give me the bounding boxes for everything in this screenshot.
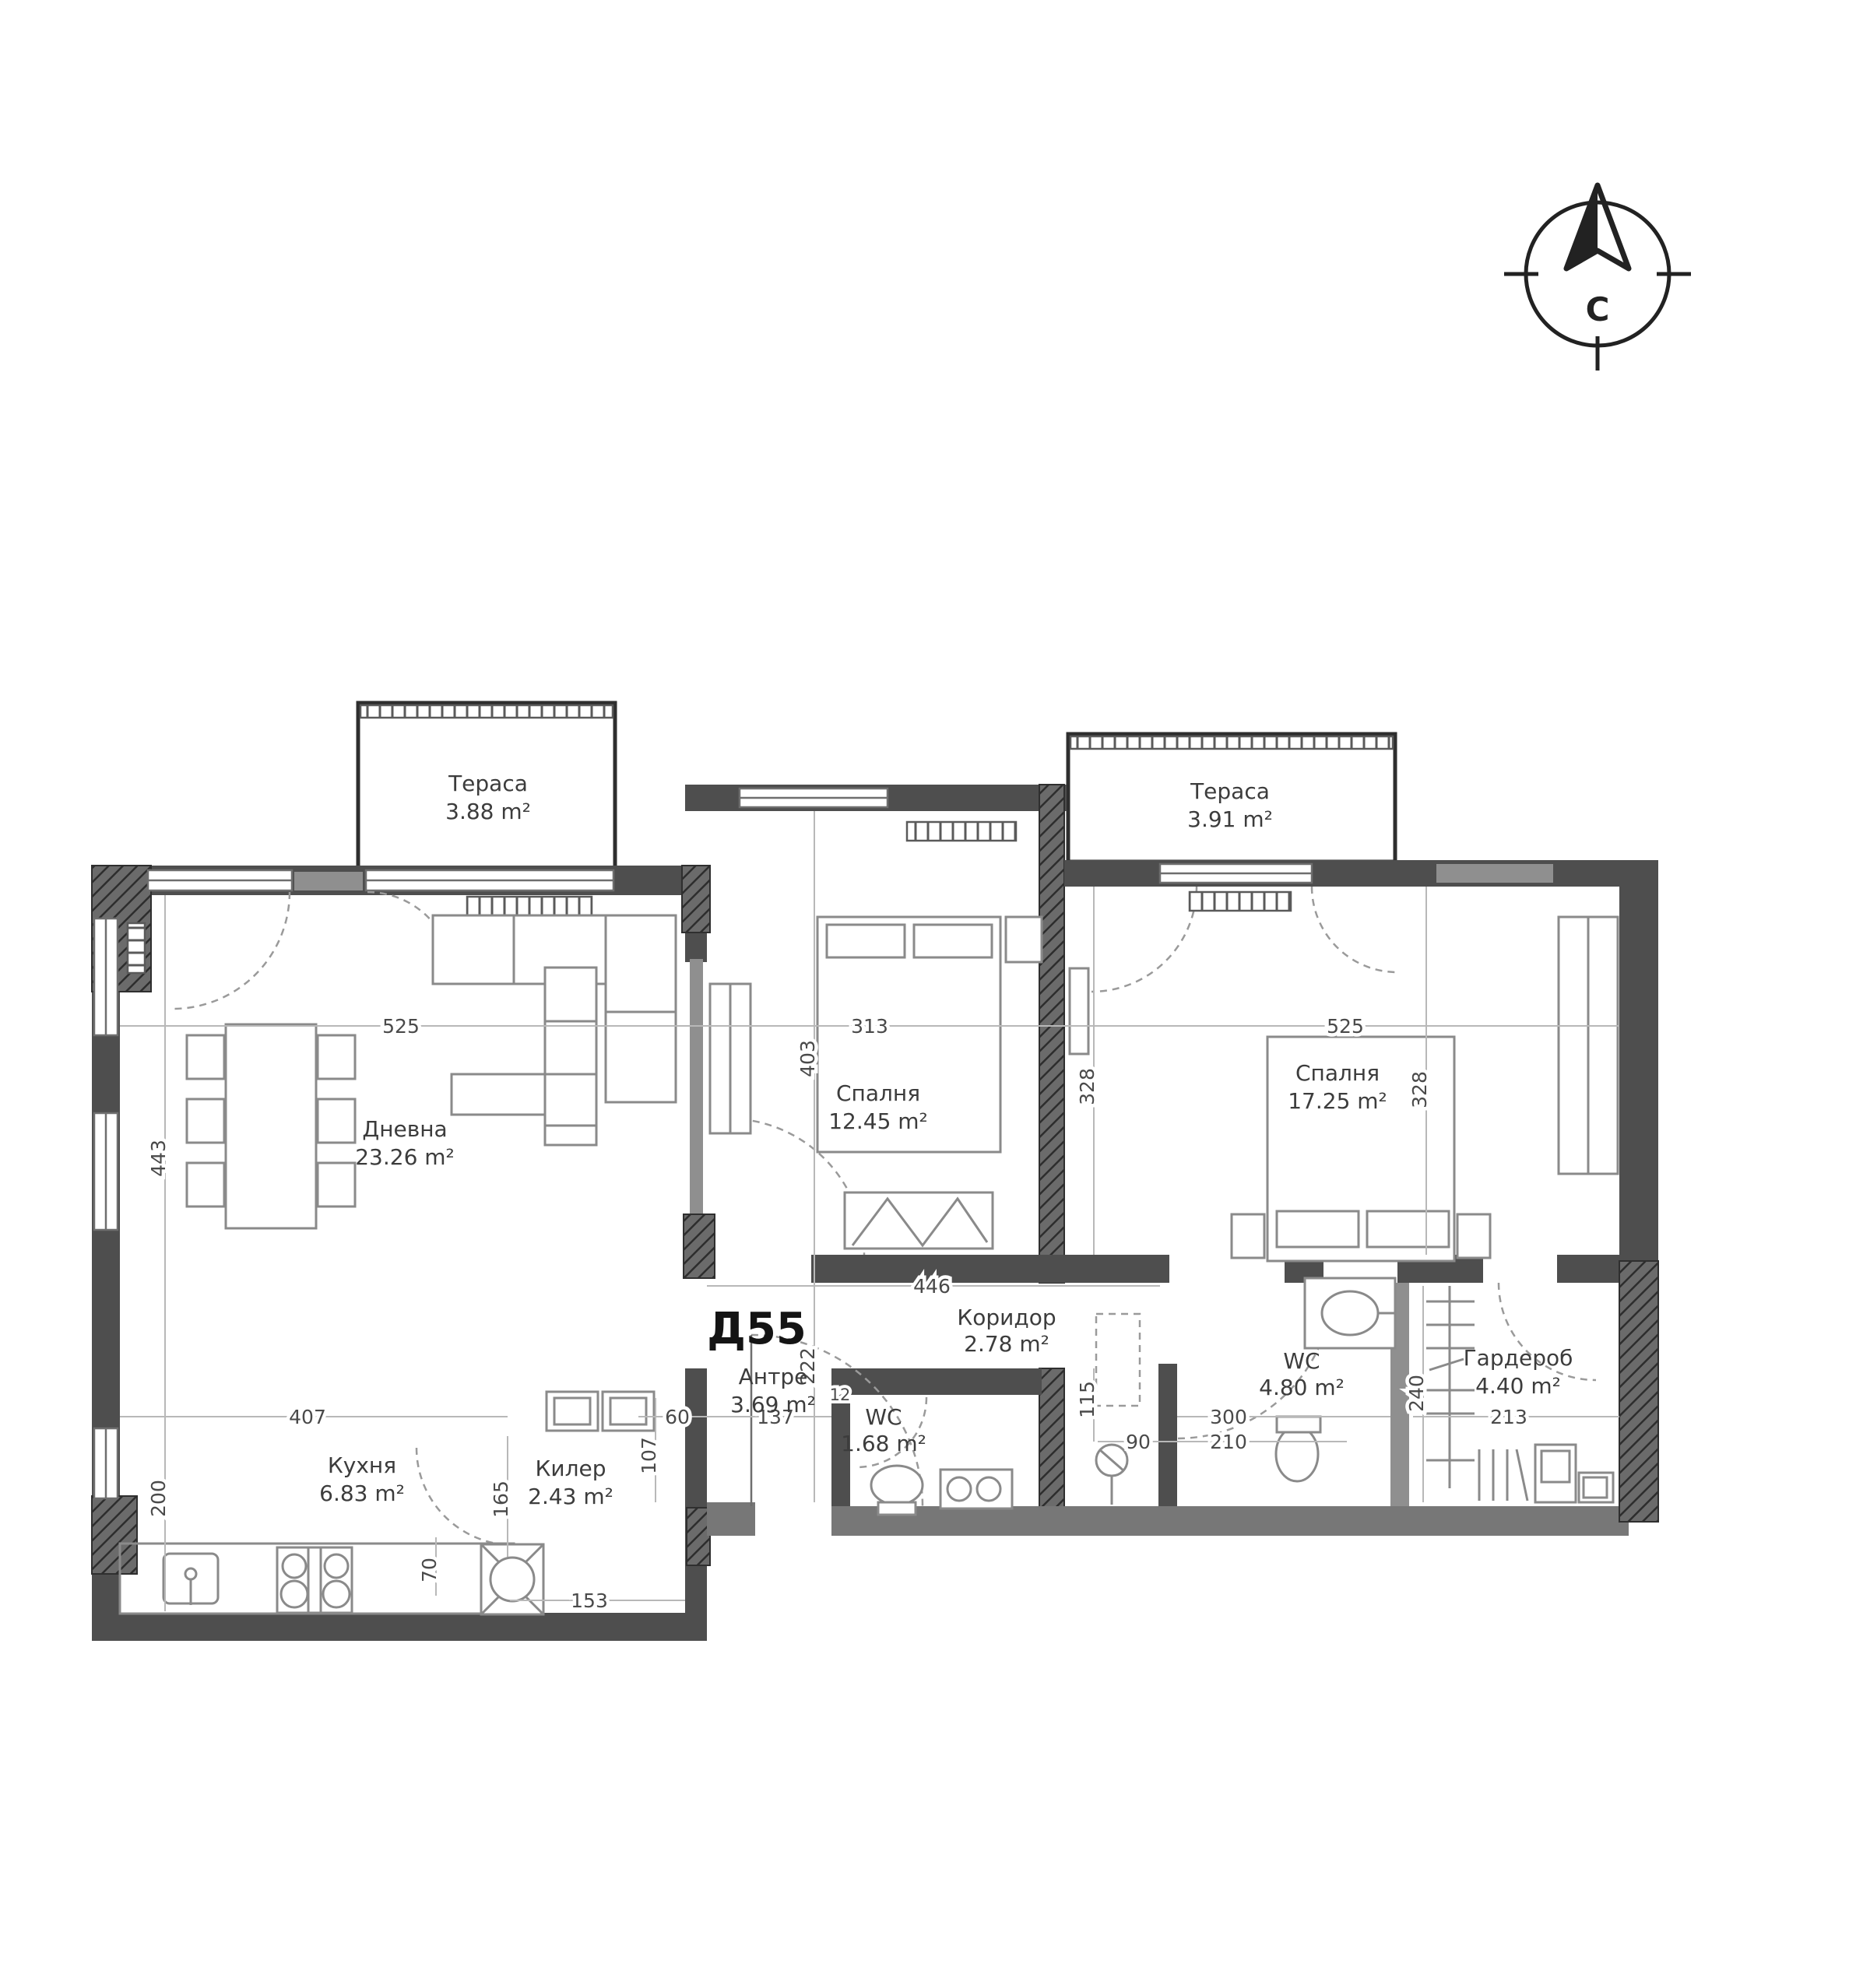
dimension-label: 525 <box>1327 1015 1364 1038</box>
party-wall <box>1039 785 1064 1283</box>
radiator-block <box>294 872 363 890</box>
dimension-label: 403 <box>796 1040 819 1077</box>
closet-shelves <box>1479 1445 1613 1502</box>
terrace-left-railing <box>360 705 613 718</box>
window-left-2 <box>94 1113 118 1230</box>
dimension-label: 407 <box>289 1406 326 1428</box>
window-left-1 <box>94 918 118 1035</box>
nightstand <box>1457 1214 1490 1258</box>
terrace-right-railing <box>1070 736 1393 749</box>
dimension-label: 12 <box>830 1386 851 1404</box>
room-label-storage: Килер2.43 m² <box>528 1456 613 1509</box>
dresser-bedroom1 <box>845 1192 993 1249</box>
dimension-label: 107 <box>638 1437 660 1474</box>
room-label-wc-1: WC1.68 m² <box>841 1404 926 1456</box>
concrete-pier <box>92 1496 137 1574</box>
boiler-outline <box>1096 1314 1140 1406</box>
balcony-door-arc <box>173 892 290 1009</box>
dining-set <box>187 1024 355 1228</box>
room-label-kitchen: Кухня6.83 m² <box>319 1452 405 1506</box>
radiator-block <box>1436 864 1553 883</box>
cabinet <box>1070 968 1088 1054</box>
shower-icon <box>1096 1445 1127 1505</box>
dimension-label: 90 <box>1126 1431 1151 1453</box>
dimension-label: 210 <box>1210 1431 1247 1453</box>
dining-table <box>226 1024 316 1228</box>
room-label-entry: Антре3.69 m² <box>730 1364 816 1417</box>
window-bedroom1 <box>740 789 888 807</box>
room-label-wc-2: WC4.80 m² <box>1259 1348 1345 1400</box>
toilet-icon-2 <box>1276 1417 1320 1481</box>
storage-cabinets <box>547 1392 654 1431</box>
concrete-pier <box>687 1508 710 1565</box>
dimension-label: 300 <box>1210 1406 1247 1428</box>
washing-machine-icon <box>481 1544 543 1614</box>
vanity-sink-icon <box>940 1470 1012 1509</box>
dimension-label: 70 <box>418 1558 441 1582</box>
dimension-label: 60 <box>665 1406 690 1428</box>
window-left-3 <box>94 1428 118 1498</box>
terrace2-door-arc <box>1091 887 1197 992</box>
unit-id-label: Д55 <box>707 1304 807 1354</box>
dimension-label: 153 <box>571 1589 608 1612</box>
dimension-label: 200 <box>147 1480 170 1517</box>
kitchen-sink-icon <box>163 1554 218 1605</box>
dimension-label: 446 <box>913 1275 951 1298</box>
stove-icon <box>277 1547 352 1613</box>
terrace-left-door-opening <box>366 870 613 890</box>
bookshelf <box>545 968 596 1145</box>
window-living-top <box>148 870 292 890</box>
dimension-label: 443 <box>147 1140 170 1177</box>
dimension-label: 525 <box>382 1015 420 1038</box>
dimension-label: 313 <box>851 1015 888 1038</box>
dimension-label: 115 <box>1076 1381 1099 1418</box>
nightstand <box>1006 917 1042 962</box>
floor-plan: 525 313 525 443 403 328 328 446 222 407 … <box>0 0 1849 1988</box>
dimension-label: 165 <box>490 1480 512 1518</box>
toilet-icon <box>871 1466 923 1515</box>
compass-label: С <box>1586 290 1610 328</box>
room-label-corridor: Коридор2.78 m² <box>957 1305 1056 1357</box>
dimension-label: 240 <box>1405 1375 1428 1412</box>
wardrobe-bedroom1 <box>710 984 750 1133</box>
concrete-wall <box>1619 1261 1658 1522</box>
closet-rod-icon <box>1426 1286 1475 1488</box>
terrace2-door2-arc <box>1312 887 1397 972</box>
concrete-pier <box>684 1214 715 1278</box>
dimension-label: 328 <box>1408 1071 1431 1108</box>
concrete-pier <box>682 866 710 933</box>
room-label-living: Дневна23.26 m² <box>355 1116 455 1170</box>
kitchen-counter <box>120 1544 514 1614</box>
nightstand <box>1232 1214 1264 1258</box>
wardrobe-bedroom2 <box>1559 917 1618 1174</box>
dimension-label: 328 <box>1076 1068 1099 1105</box>
dimension-label: 213 <box>1490 1406 1527 1428</box>
sink-icon <box>1305 1278 1395 1348</box>
window-bedroom2-1 <box>1160 864 1312 883</box>
compass-icon: С <box>1504 185 1691 371</box>
